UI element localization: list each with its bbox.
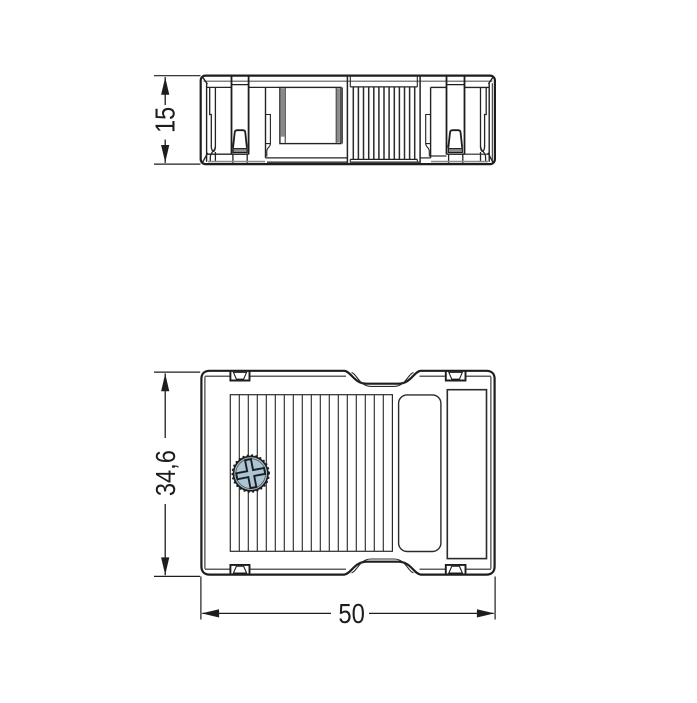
svg-text:50: 50 — [338, 598, 365, 629]
svg-text:15: 15 — [150, 107, 181, 133]
svg-text:34,6: 34,6 — [150, 450, 181, 496]
